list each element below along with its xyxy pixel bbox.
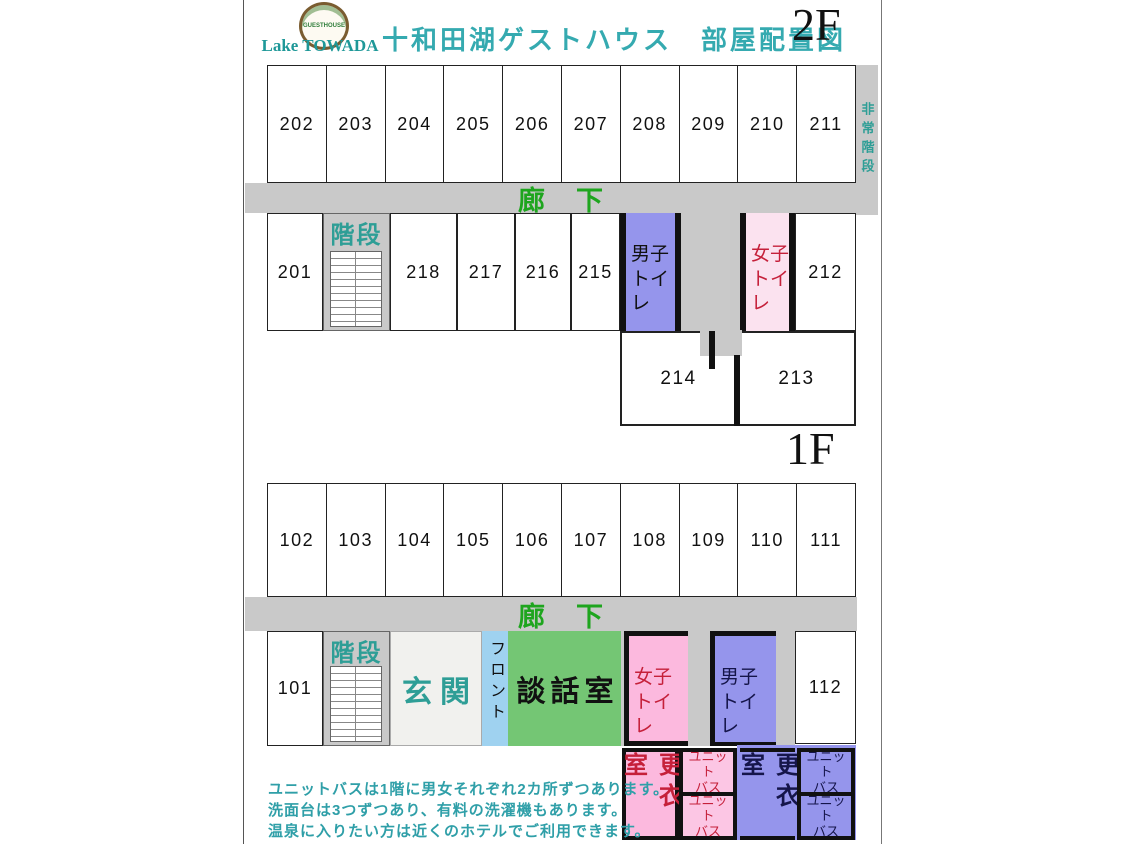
room-divider-wall [734, 355, 740, 426]
room-218: 218 [390, 213, 457, 331]
note-line-1: ユニットバスは1階に男女それぞれ2カ所ずつあります。 [268, 779, 669, 800]
floor2-womens-toilet: 女子 トイレ [740, 213, 795, 331]
floor2-label: 2F [792, 0, 841, 51]
room-108: 108 [621, 484, 680, 596]
room-212: 212 [795, 213, 856, 331]
room-107: 107 [562, 484, 621, 596]
front-desk-label: フロント [483, 640, 507, 746]
room-215: 215 [571, 213, 620, 331]
notes-block: ユニットバスは1階に男女それぞれ2カ所ずつあります。 洗面台は3つずつあり、有料… [268, 779, 669, 842]
room-202: 202 [268, 66, 327, 182]
floor1-top-room-row: 102 103 104 105 106 107 108 109 110 111 [267, 483, 856, 597]
room-213: 213 [737, 331, 856, 426]
floor1-label: 1F [786, 424, 835, 475]
room-206: 206 [503, 66, 562, 182]
room-201: 201 [267, 213, 323, 331]
note-line-3: 温泉に入りたい方は近くのホテルでご利用できます。 [268, 821, 669, 842]
floor1-corridor-label: 廊 下 [518, 595, 605, 634]
room-208: 208 [621, 66, 680, 182]
emergency-stairs-label: 非常階段 [858, 102, 877, 178]
room-105: 105 [444, 484, 503, 596]
logo-subtitle: Lake TOWADA [260, 36, 380, 56]
floor2-wall-segment [709, 331, 715, 369]
unit-bath-womens-2: ユニット バス [679, 792, 737, 840]
entrance-area: 玄関 [390, 631, 482, 746]
room-203: 203 [327, 66, 386, 182]
room-207: 207 [562, 66, 621, 182]
logo-text: GUESTHOUSE [303, 23, 345, 29]
floor2-corridor-label-wrap: 廊 下 [267, 183, 856, 213]
floor1-mens-toilet: 男子 トイレ [710, 631, 776, 746]
room-109: 109 [680, 484, 739, 596]
room-211: 211 [797, 66, 855, 182]
floor1-stairs-label: 階段 [324, 633, 389, 668]
unit-bath-womens-1: ユニット バス [679, 748, 737, 796]
front-desk-area: フロント [482, 631, 508, 746]
room-209: 209 [680, 66, 739, 182]
floor1-stairs-graphic [330, 666, 382, 742]
room-106: 106 [503, 484, 562, 596]
room-204: 204 [386, 66, 445, 182]
room-216: 216 [515, 213, 571, 331]
room-205: 205 [444, 66, 503, 182]
room-111: 111 [797, 484, 855, 596]
mens-changing-room: 更衣室 [740, 748, 795, 840]
floor1-womens-toilet: 女子 トイレ [624, 631, 688, 746]
floor2-stairs-graphic [330, 251, 382, 327]
floor2-mens-toilet: 男子 トイレ [620, 213, 681, 331]
floor2-lower-passage [700, 330, 742, 356]
note-line-2: 洗面台は3つずつあり、有料の洗濯機もあります。 [268, 800, 669, 821]
floor1-corridor-label-wrap: 廊 下 [267, 597, 856, 631]
floor2-corridor-label: 廊 下 [518, 179, 605, 218]
room-102: 102 [268, 484, 327, 596]
room-210: 210 [738, 66, 797, 182]
room-103: 103 [327, 484, 386, 596]
page-left-border [243, 0, 244, 844]
page-right-border [881, 0, 882, 844]
room-112: 112 [795, 631, 856, 744]
room-110: 110 [738, 484, 797, 596]
page-title: 十和田湖ゲストハウス 部屋配置図 [382, 20, 846, 57]
room-101: 101 [267, 631, 323, 746]
room-104: 104 [386, 484, 445, 596]
unit-bath-mens-1: ユニット バス [797, 748, 855, 796]
floor2-top-room-row: 202 203 204 205 206 207 208 209 210 211 [267, 65, 856, 183]
floorplan-page: GUESTHOUSE Lake TOWADA 十和田湖ゲストハウス 部屋配置図 … [0, 0, 1125, 844]
floor2-toilet-passage [681, 213, 740, 331]
room-217: 217 [457, 213, 515, 331]
lounge-area: 談話室 [508, 631, 622, 746]
unit-bath-mens-2: ユニット バス [797, 792, 855, 840]
floor2-stairs-label: 階段 [324, 215, 389, 250]
